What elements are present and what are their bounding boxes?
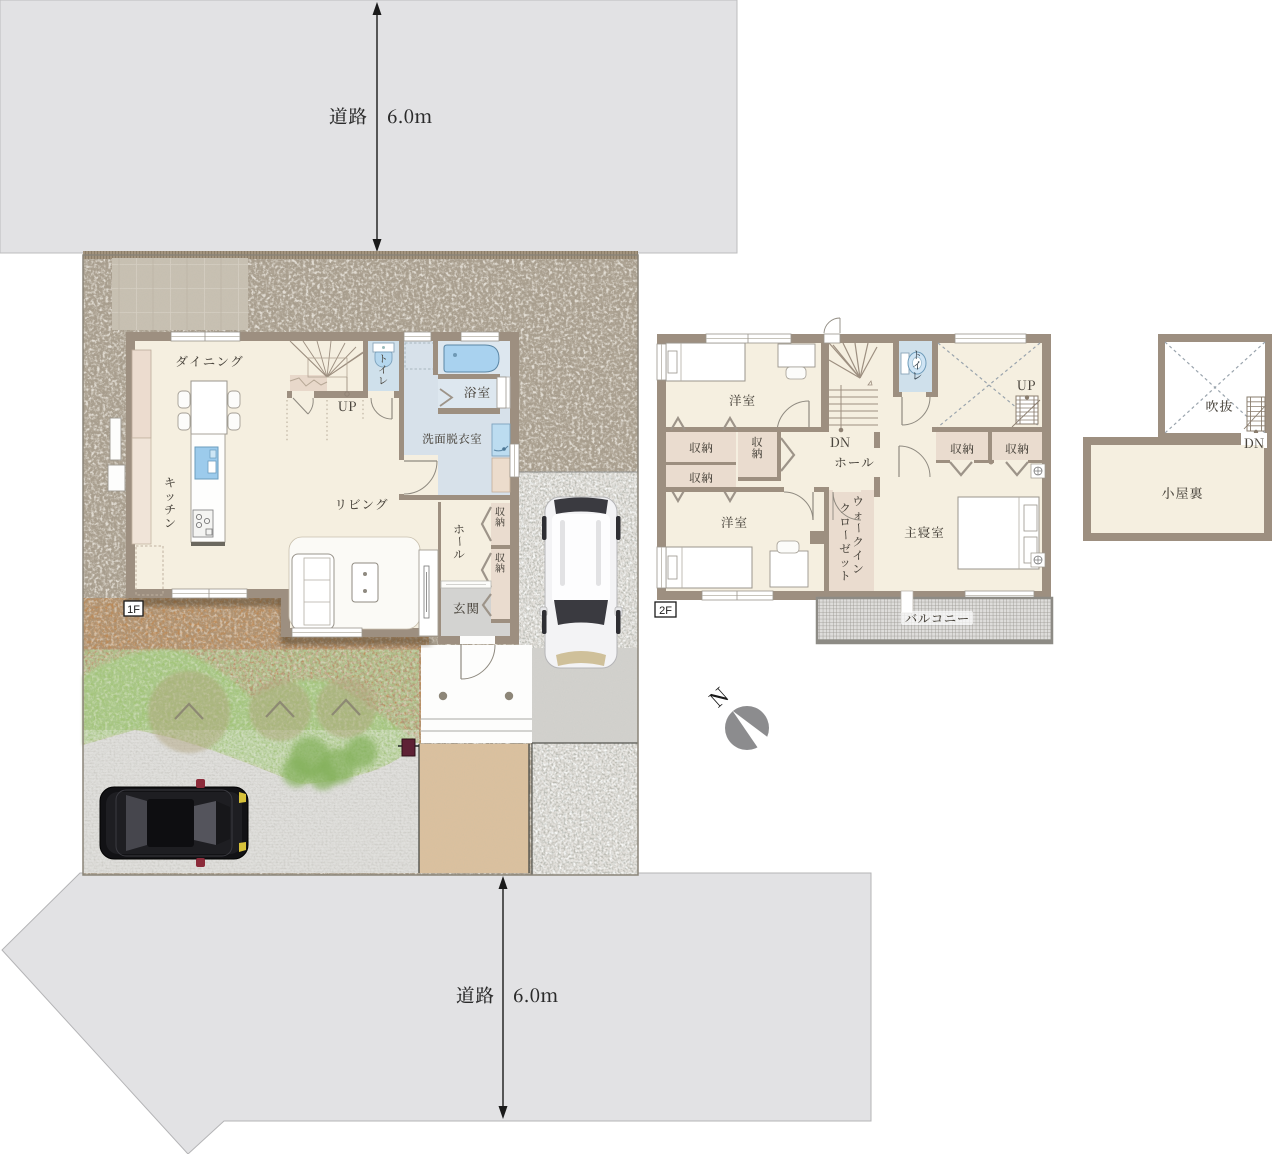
svg-text:1F: 1F bbox=[127, 604, 140, 616]
svg-text:2F: 2F bbox=[659, 605, 672, 617]
